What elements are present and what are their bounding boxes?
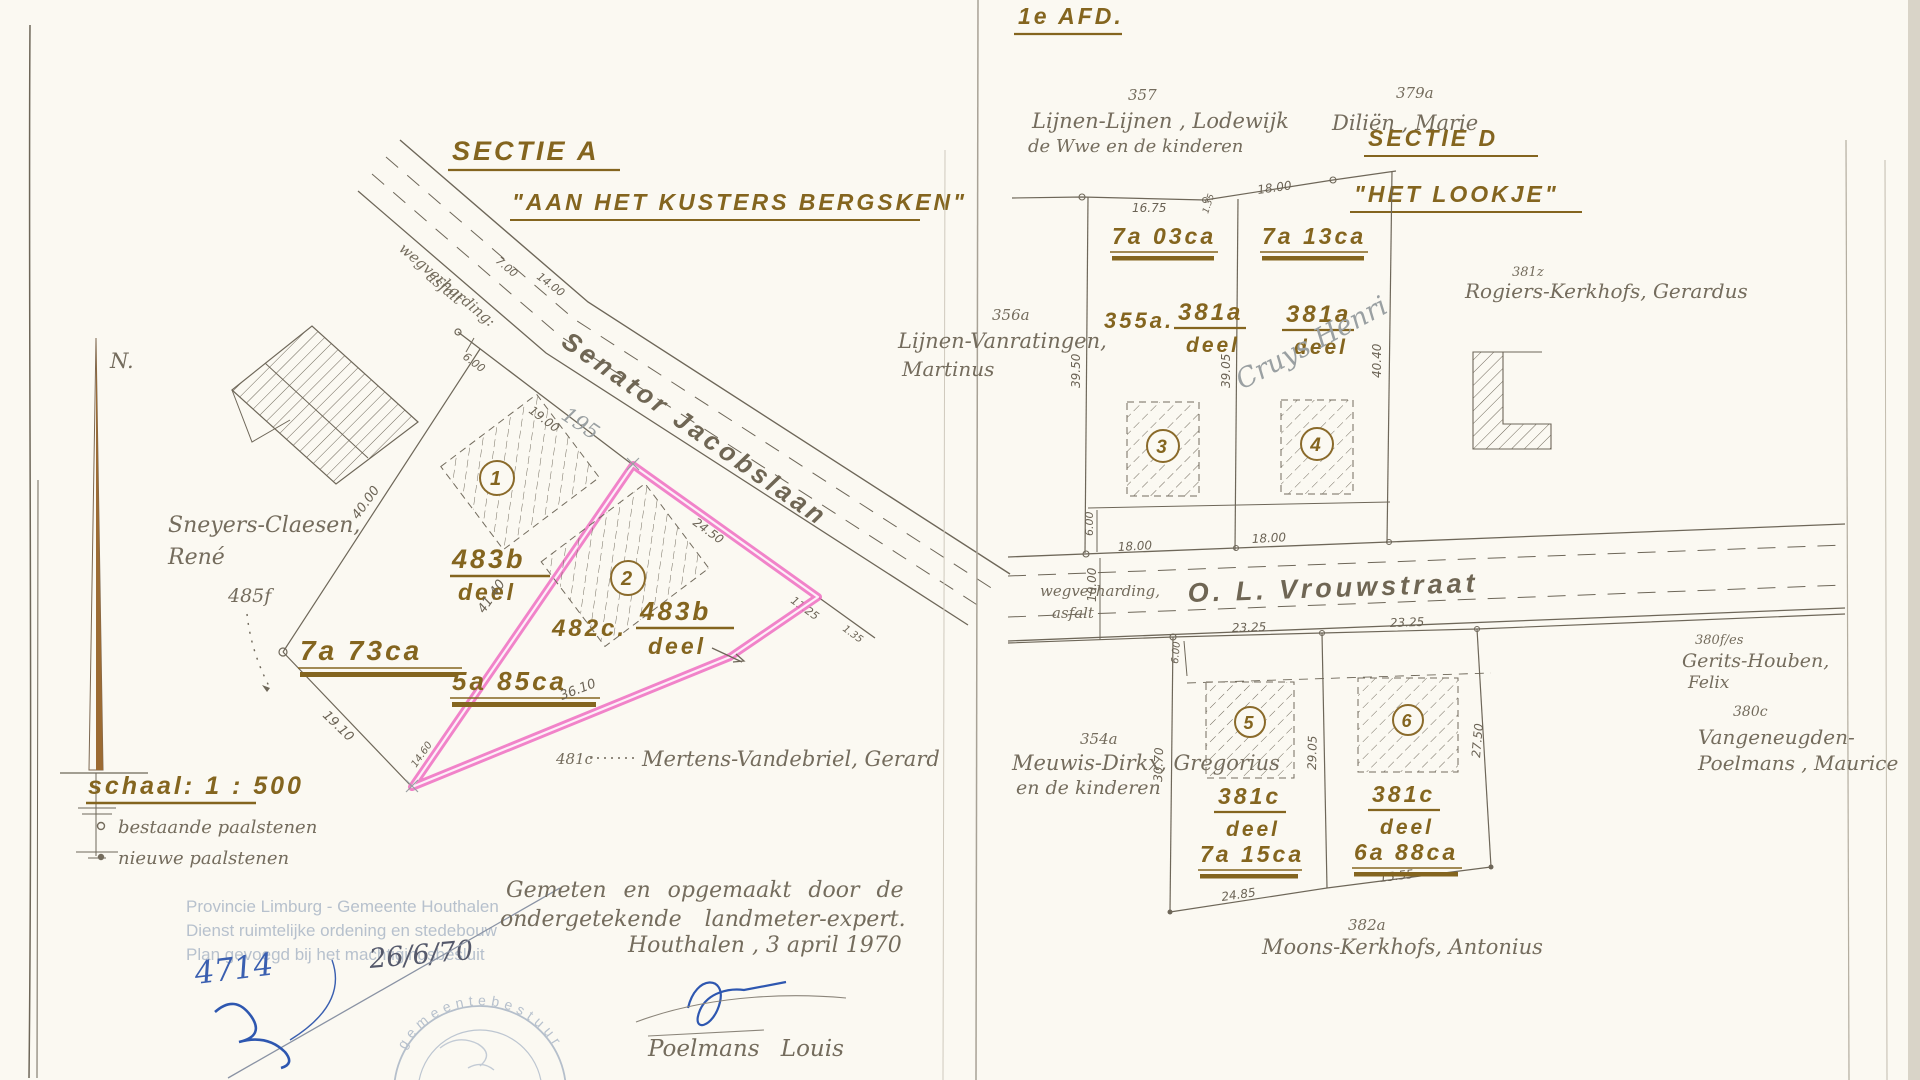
legend-new-stones: nieuwe paalstenen [118, 848, 289, 869]
road-surface-2: asfalt [1052, 604, 1095, 622]
statement-line-1: Gemeten en opgemaakt door de [506, 878, 904, 903]
owner-379a-number: 379a [1396, 84, 1434, 102]
ref-485f: 485f [227, 585, 274, 607]
parcel-3-area: 7a 03ca [1112, 223, 1216, 249]
parcel-5-code: 381c [1218, 783, 1281, 809]
stamp-line-1: Provincie Limburg - Gemeente Houthalen [186, 897, 499, 916]
owner-380c-number: 380c [1733, 704, 1768, 720]
scanned-plan-page: SECTIE A "AAN HET KUSTERS BERGSKEN" Sena… [0, 0, 1920, 1080]
neighbor-name: Mertens-Vandebriel, Gerard [641, 747, 940, 771]
owner-380fes-name: Gerits-Houben, [1682, 650, 1829, 672]
parcel-5-number: 5 [1243, 713, 1256, 733]
parcel-3-deel: deel [1186, 334, 1240, 357]
parcel-3-code: 381a [1178, 299, 1243, 326]
parcel-5-area: 7a 15ca [1200, 841, 1304, 867]
dim-39-50: 39.50 [1069, 353, 1083, 388]
section-a-title: SECTIE A [452, 136, 600, 166]
statement-line-3: Houthalen , 3 april 1970 [627, 933, 902, 958]
owner-356a-number: 356a [992, 306, 1030, 324]
dim-29-05: 29.05 [1305, 735, 1320, 770]
neighbor-code: 481c [555, 750, 594, 768]
owner-356a-name: Lijnen-Vanratingen, [897, 329, 1107, 353]
north-label: N. [109, 349, 134, 373]
parcel-1-number: 1 [490, 468, 504, 490]
owner-west-line1: Sneyers-Claesen, [168, 513, 360, 538]
dim-6-00-b: 6.00 [1170, 641, 1183, 664]
parcel-6-code: 381c [1372, 781, 1435, 807]
owner-354a-name: Meuwis-Dirkx, Gregorius [1011, 751, 1280, 775]
parcel-3-prefix: 355a. [1104, 308, 1174, 333]
owner-357-name2: de Wwe en de kinderen [1028, 136, 1243, 157]
dim-18-00-b: 18.00 [1251, 530, 1286, 546]
owner-381z-name: Rogiers-Kerkhofs, Gerardus [1464, 279, 1748, 303]
parcel-4-number: 4 [1309, 435, 1324, 456]
parcel-2-code: 483b [639, 596, 711, 626]
legend-existing-stones: bestaande paalstenen [118, 817, 317, 838]
surveyor-name: Poelmans Louis [647, 1036, 844, 1062]
dim-6-00-strip: 6.00 [1083, 512, 1096, 537]
cadastral-plan: SECTIE A "AAN HET KUSTERS BERGSKEN" Sena… [0, 0, 1920, 1080]
parcel-6-area: 6a 88ca [1354, 839, 1458, 865]
dim-16-75: 16.75 [1132, 201, 1166, 215]
parcel-2-number: 2 [620, 568, 635, 590]
statement-line-2: ondergetekende landmeter-expert. [500, 907, 906, 932]
legend-filled-dot [98, 854, 104, 860]
owner-357-number: 357 [1128, 86, 1157, 104]
owner-380c-name: Vangeneugden- [1698, 725, 1855, 749]
scale-label: schaal: 1 : 500 [88, 772, 304, 800]
owner-380c-name2: Poelmans , Maurice [1697, 751, 1898, 775]
owner-354a-name2: en de kinderen [1016, 777, 1161, 799]
parcel-1-area: 7a 73ca [300, 635, 422, 666]
section-d-subtitle: "HET LOOKJE" [1354, 181, 1559, 207]
dim-18-00-a: 18.00 [1117, 538, 1152, 554]
owner-381z-number: 381z [1512, 265, 1544, 280]
section-a-subtitle: "AAN HET KUSTERS BERGSKEN" [512, 189, 967, 215]
dim-23-25-b: 23.25 [1390, 615, 1425, 630]
owner-357-name: Lijnen-Lijnen , Lodewijk [1031, 109, 1289, 133]
parcel-6-number: 6 [1401, 711, 1414, 731]
owner-356a-name2: Martinus [901, 357, 994, 381]
parcel-2-area: 5a 85ca [452, 666, 567, 696]
parcel-2-deel: deel [648, 633, 706, 659]
owner-379a-name: Diliën , Marie [1331, 111, 1478, 135]
parcel-2-prefix: 482c. [551, 615, 627, 642]
parcel-6-deel: deel [1380, 816, 1434, 839]
owner-382a-number: 382a [1348, 916, 1386, 934]
afd-title: 1e AFD. [1018, 3, 1124, 29]
dim-23-25-a: 23.25 [1232, 620, 1267, 635]
dim-40-40: 40.40 [1370, 343, 1384, 378]
paper-background [0, 0, 1920, 1080]
scan-edge-right [1908, 0, 1920, 1080]
owner-380fes-number: 380f/es [1695, 633, 1744, 648]
parcel-1-code: 483b [451, 544, 526, 574]
dim-10-00: 10.00 [1085, 567, 1099, 602]
owner-380fes-name2: Felix [1687, 673, 1730, 693]
parcel-5-deel: deel [1226, 818, 1280, 841]
owner-west-line2: René [167, 545, 225, 570]
parcel-3-number: 3 [1156, 437, 1170, 458]
parcel-4-area: 7a 13ca [1262, 223, 1366, 249]
owner-382a-name: Moons-Kerkhofs, Antonius [1261, 935, 1543, 959]
owner-354a-number: 354a [1080, 730, 1118, 748]
scale-legend: schaal: 1 : 500 bestaande paalstenen nie… [86, 772, 317, 869]
